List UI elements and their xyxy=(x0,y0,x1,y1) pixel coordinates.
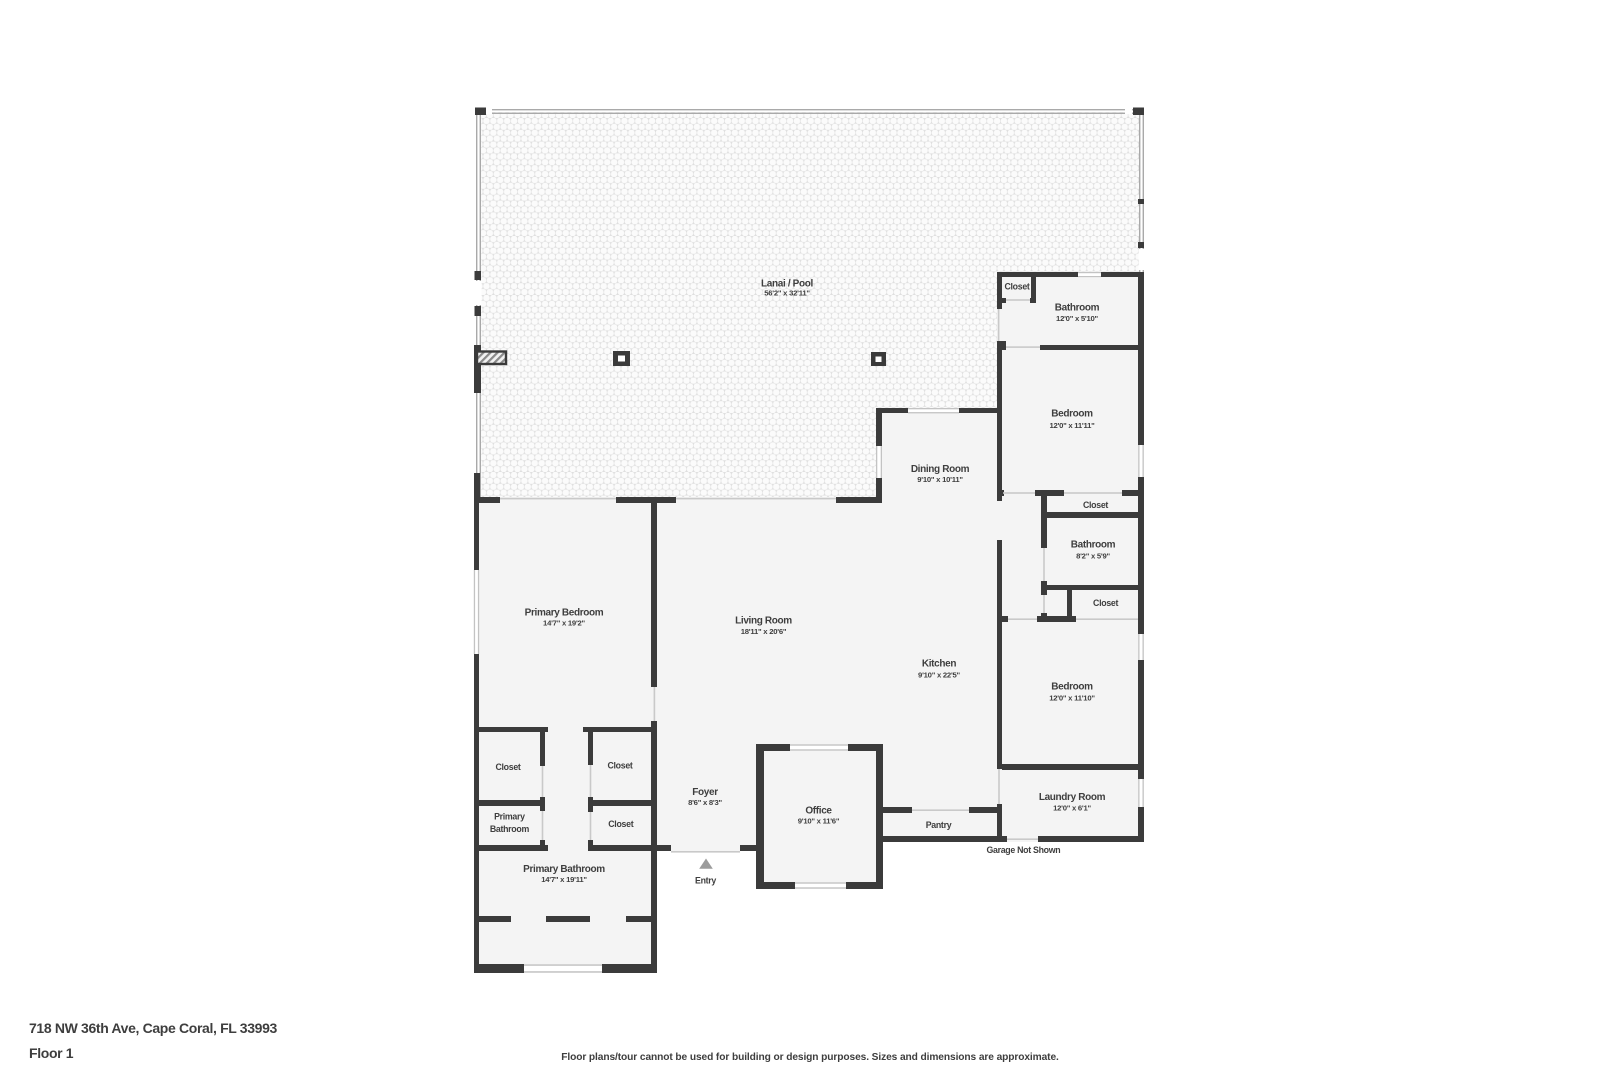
svg-text:9'10" x 10'11": 9'10" x 10'11" xyxy=(917,475,963,484)
svg-text:Primary Bedroom: Primary Bedroom xyxy=(525,608,604,619)
svg-text:Primary Bathroom: Primary Bathroom xyxy=(523,864,605,875)
svg-text:Pantry: Pantry xyxy=(926,820,952,830)
svg-text:14'7" x 19'2": 14'7" x 19'2" xyxy=(543,619,586,628)
svg-text:Closet: Closet xyxy=(495,762,520,772)
svg-text:9'10" x 11'6": 9'10" x 11'6" xyxy=(798,816,840,825)
svg-text:12'0" x 6'1": 12'0" x 6'1" xyxy=(1053,803,1091,812)
svg-text:Closet: Closet xyxy=(1083,500,1108,510)
svg-text:Bathroom: Bathroom xyxy=(1055,303,1100,314)
svg-text:Foyer: Foyer xyxy=(692,787,718,798)
svg-text:Closet: Closet xyxy=(608,819,633,829)
svg-text:12'0" x 11'10": 12'0" x 11'10" xyxy=(1049,693,1095,702)
svg-text:14'7" x 19'11": 14'7" x 19'11" xyxy=(541,875,587,884)
svg-text:Bathroom: Bathroom xyxy=(490,824,530,834)
svg-text:Bedroom: Bedroom xyxy=(1051,682,1093,693)
svg-text:Laundry Room: Laundry Room xyxy=(1039,792,1106,803)
svg-text:12'0" x 5'10": 12'0" x 5'10" xyxy=(1056,314,1099,323)
svg-text:12'0" x 11'11": 12'0" x 11'11" xyxy=(1049,421,1095,430)
svg-text:Primary: Primary xyxy=(494,812,525,822)
svg-text:Dining Room: Dining Room xyxy=(911,464,970,475)
svg-text:Garage Not Shown: Garage Not Shown xyxy=(986,845,1060,855)
svg-text:Kitchen: Kitchen xyxy=(922,659,956,670)
svg-text:Closet: Closet xyxy=(1004,282,1029,292)
svg-text:8'6" x 8'3": 8'6" x 8'3" xyxy=(688,798,722,807)
svg-text:Office: Office xyxy=(805,806,832,817)
svg-text:Closet: Closet xyxy=(1093,598,1118,608)
svg-text:18'11" x 20'6": 18'11" x 20'6" xyxy=(741,627,787,636)
svg-text:8'2" x 5'9": 8'2" x 5'9" xyxy=(1076,551,1110,560)
svg-text:Bedroom: Bedroom xyxy=(1051,409,1093,420)
svg-text:Closet: Closet xyxy=(607,761,632,771)
svg-text:9'10" x 22'5": 9'10" x 22'5" xyxy=(918,670,961,679)
svg-text:Entry: Entry xyxy=(695,876,716,886)
svg-text:56'2" x 32'11": 56'2" x 32'11" xyxy=(764,289,810,298)
svg-text:Living Room: Living Room xyxy=(735,616,792,627)
svg-text:Bathroom: Bathroom xyxy=(1071,540,1116,551)
